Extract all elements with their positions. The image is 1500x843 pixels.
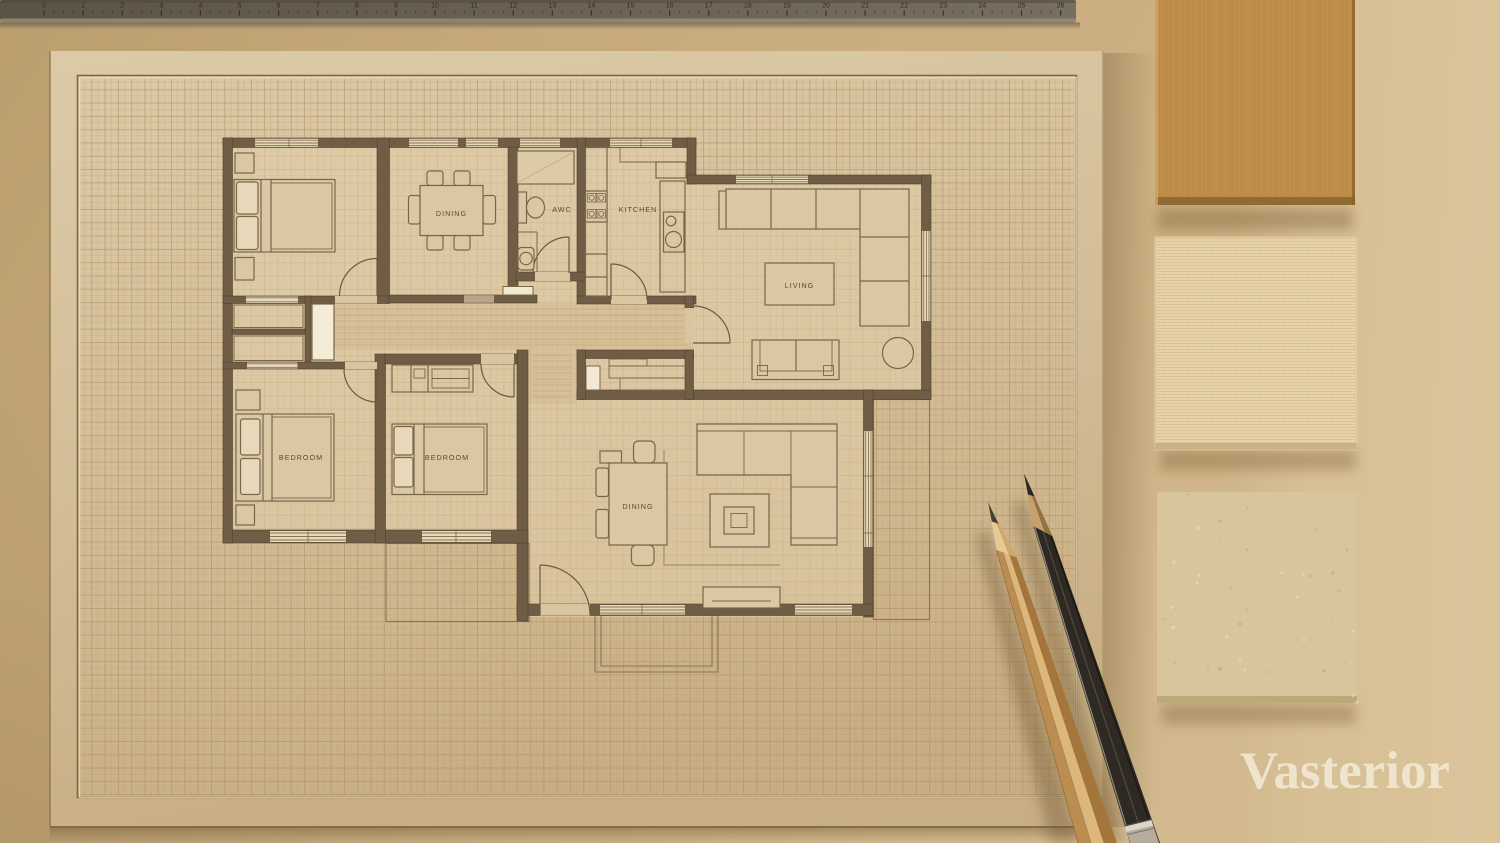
svg-text:BEDROOM: BEDROOM [279,453,323,462]
svg-text:DINING: DINING [622,502,653,511]
svg-text:18: 18 [744,3,752,10]
svg-text:13: 13 [548,3,556,10]
svg-text:20: 20 [822,3,830,10]
svg-text:10: 10 [431,3,439,10]
svg-text:Vasterior: Vasterior [1240,742,1450,800]
svg-text:12: 12 [509,3,517,10]
svg-text:7: 7 [316,3,320,10]
svg-text:KITCHEN: KITCHEN [619,205,658,214]
svg-text:16: 16 [666,3,674,10]
svg-text:8: 8 [355,3,359,10]
svg-text:24: 24 [979,3,987,10]
svg-text:AWC: AWC [552,205,572,214]
svg-text:26: 26 [1057,3,1065,10]
svg-text:6: 6 [277,3,281,10]
svg-text:0: 0 [42,3,46,10]
svg-text:1: 1 [81,3,85,10]
svg-text:DINING: DINING [436,209,467,218]
svg-text:9: 9 [394,3,398,10]
svg-text:LIVING: LIVING [785,281,815,290]
svg-text:14: 14 [588,3,596,10]
svg-text:25: 25 [1018,3,1026,10]
svg-text:2: 2 [120,3,124,10]
svg-text:22: 22 [900,3,908,10]
svg-text:23: 23 [939,3,947,10]
svg-text:17: 17 [705,3,713,10]
svg-text:11: 11 [470,3,477,10]
svg-text:15: 15 [627,3,635,10]
svg-text:21: 21 [861,3,869,10]
svg-text:19: 19 [783,3,791,10]
svg-text:3: 3 [159,3,163,10]
svg-text:BEDROOM: BEDROOM [425,453,469,462]
svg-text:5: 5 [238,3,242,10]
svg-text:4: 4 [198,3,202,10]
